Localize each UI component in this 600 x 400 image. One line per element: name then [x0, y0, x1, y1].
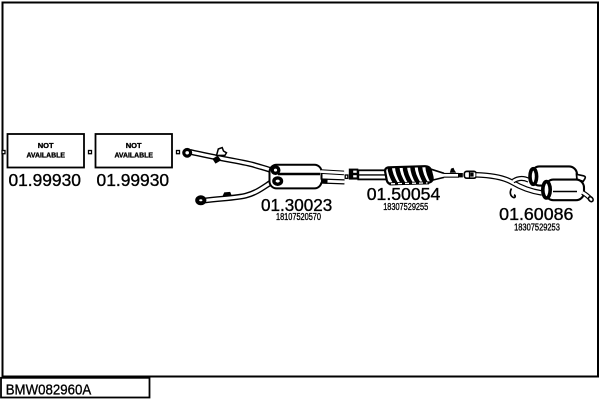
svg-text:01.99930: 01.99930: [97, 170, 170, 190]
svg-text:NOT: NOT: [38, 141, 54, 150]
svg-text:18307529255: 18307529255: [383, 202, 428, 213]
svg-text:01.50054: 01.50054: [367, 184, 441, 204]
svg-text:01.60086: 01.60086: [499, 204, 573, 224]
svg-text:18107520570: 18107520570: [276, 212, 321, 223]
svg-text:BMW082960A: BMW082960A: [6, 382, 92, 399]
svg-text:AVAILABLE: AVAILABLE: [26, 151, 65, 160]
svg-text:18307529253: 18307529253: [514, 223, 560, 234]
svg-text:01.99930: 01.99930: [8, 170, 81, 190]
svg-text:AVAILABLE: AVAILABLE: [114, 151, 153, 160]
svg-text:NOT: NOT: [126, 141, 142, 150]
